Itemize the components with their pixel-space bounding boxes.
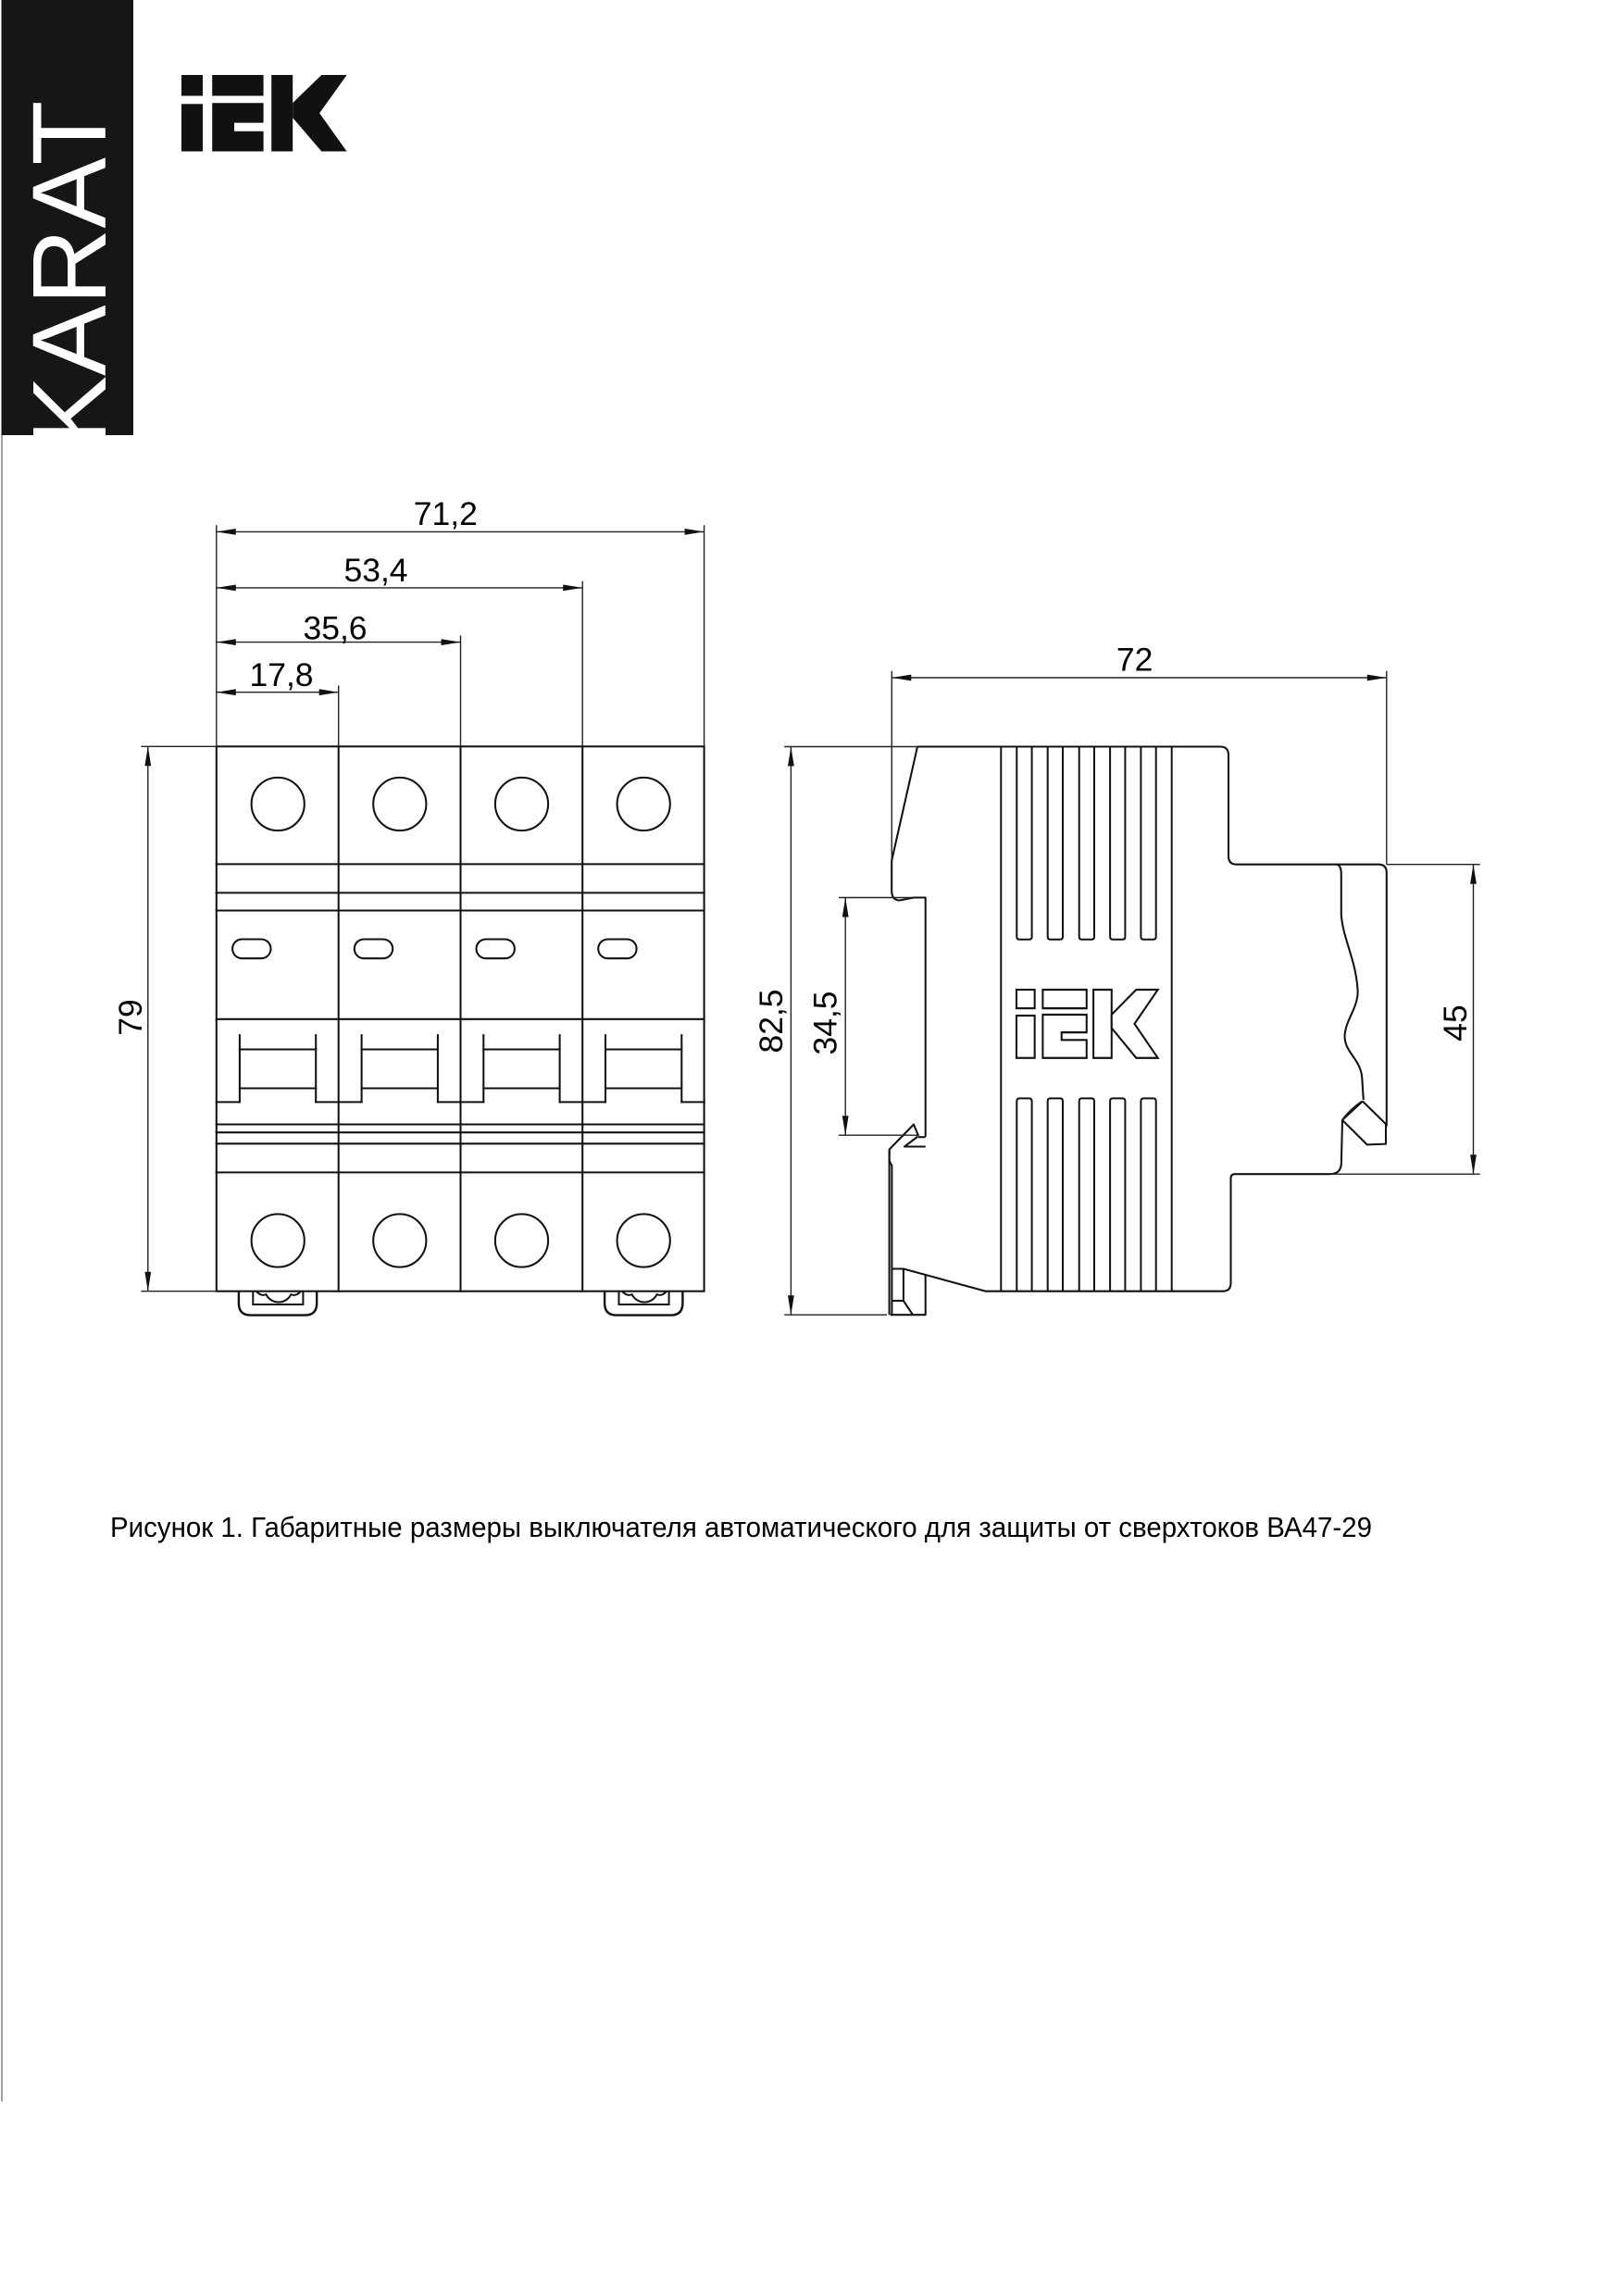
svg-text:KARAT: KARAT [11,101,128,447]
svg-text:Рисунок 1. Габаритные размеры: Рисунок 1. Габаритные размеры выключател… [110,1512,1372,1543]
svg-text:72: 72 [1116,642,1153,679]
svg-text:17,8: 17,8 [249,656,313,693]
svg-text:71,2: 71,2 [414,495,478,532]
svg-text:79: 79 [112,999,149,1036]
svg-text:45: 45 [1437,1004,1474,1042]
svg-text:82,5: 82,5 [753,989,790,1053]
svg-text:35,6: 35,6 [303,609,367,646]
svg-text:34,5: 34,5 [807,991,844,1054]
svg-text:53,4: 53,4 [343,552,407,589]
